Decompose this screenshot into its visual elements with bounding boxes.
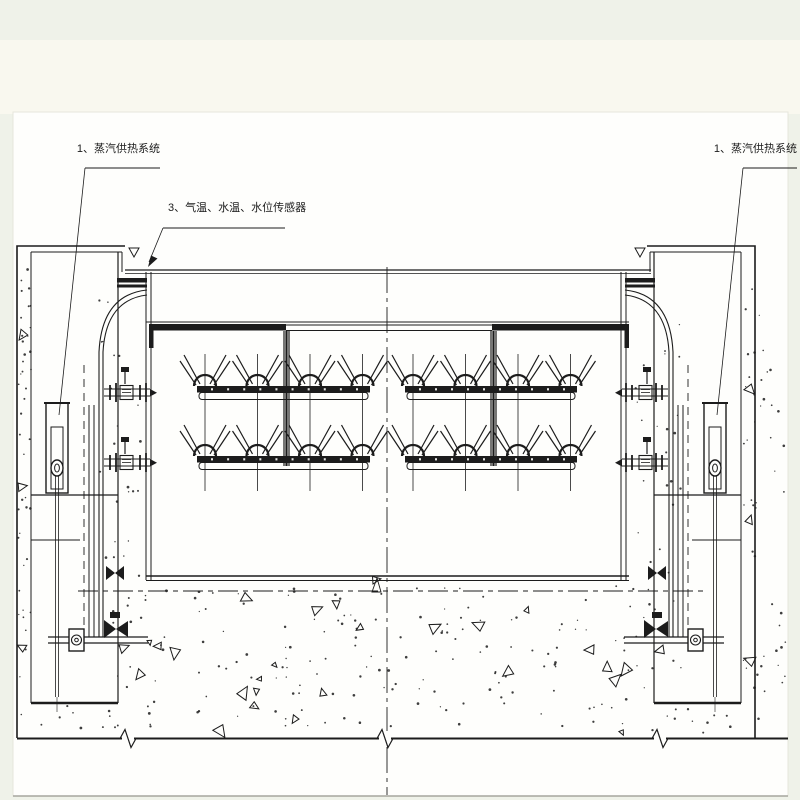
speckle-dot xyxy=(592,721,594,723)
speckle-dot xyxy=(309,660,311,662)
pipe-tick xyxy=(275,388,277,390)
speckle-dot xyxy=(22,610,23,611)
pipe-tick xyxy=(563,458,565,460)
speckle-dot xyxy=(225,668,227,670)
speckle-dot xyxy=(586,629,587,630)
speckle-dot xyxy=(628,669,630,671)
pipe-tick xyxy=(259,388,261,390)
speckle-dot xyxy=(601,704,603,706)
speckle-dot xyxy=(22,361,24,363)
speckle-dot xyxy=(359,675,361,677)
speckle-dot xyxy=(440,706,441,707)
speckle-dot xyxy=(223,631,224,632)
speckle-dot xyxy=(25,387,27,389)
speckle-dot xyxy=(666,484,669,487)
speckle-dot xyxy=(417,702,420,705)
speckle-dot xyxy=(139,440,142,443)
speckle-dot xyxy=(777,410,780,413)
speckle-dot xyxy=(105,556,108,559)
speckle-dot xyxy=(423,679,424,680)
speckle-dot xyxy=(559,629,561,631)
speckle-dot xyxy=(498,682,500,684)
pipe-tick xyxy=(451,388,453,390)
speckle-dot xyxy=(299,684,301,686)
speckle-dot xyxy=(148,712,151,715)
speckle-dot xyxy=(22,340,24,342)
pipe-tick xyxy=(356,388,358,390)
speckle-dot xyxy=(638,532,639,533)
speckle-dot xyxy=(632,588,634,590)
speckle-dot xyxy=(23,398,25,400)
speckle-dot xyxy=(30,612,32,614)
speckle-dot xyxy=(440,631,443,634)
speckle-dot xyxy=(785,641,787,643)
speckle-dot xyxy=(128,491,129,492)
speckle-dot xyxy=(109,715,111,717)
speckle-dot xyxy=(611,707,613,709)
pipe-tick xyxy=(547,388,549,390)
speckle-dot xyxy=(137,490,139,492)
speckle-dot xyxy=(780,646,783,649)
pipe-tick xyxy=(275,458,277,460)
speckle-dot xyxy=(673,432,676,435)
speckle-dot xyxy=(149,724,151,726)
speckle-dot xyxy=(467,607,469,609)
speckle-dot xyxy=(140,617,142,619)
speckle-dot xyxy=(99,471,101,473)
speckle-dot xyxy=(651,667,653,669)
speckle-dot xyxy=(28,305,30,307)
pipe-tick xyxy=(499,388,501,390)
speckle-dot xyxy=(677,415,678,416)
speckle-dot xyxy=(202,641,205,644)
speckle-dot xyxy=(292,692,295,695)
speckle-dot xyxy=(147,705,149,707)
speckle-dot xyxy=(339,597,341,599)
speckle-dot xyxy=(783,491,785,493)
speckle-dot xyxy=(511,691,513,693)
speckle-dot xyxy=(778,665,779,666)
speckle-dot xyxy=(754,555,756,557)
speckle-dot xyxy=(678,356,680,358)
speckle-dot xyxy=(285,725,287,727)
speckle-dot xyxy=(751,288,753,290)
speckle-dot xyxy=(500,696,502,698)
speckle-dot xyxy=(101,341,103,343)
pipe-tick xyxy=(324,388,326,390)
pipe-tick xyxy=(531,388,533,390)
speckle-dot xyxy=(593,707,595,709)
speckle-dot xyxy=(285,718,287,720)
speckle-dot xyxy=(480,651,482,653)
speckle-dot xyxy=(774,470,775,471)
speckle-dot xyxy=(651,729,653,731)
speckle-dot xyxy=(665,451,667,453)
speckle-dot xyxy=(575,629,576,630)
speckle-dot xyxy=(137,404,138,405)
speckle-dot xyxy=(643,480,645,482)
speckle-dot xyxy=(751,499,753,501)
speckle-dot xyxy=(198,590,201,593)
speckle-dot xyxy=(664,350,666,352)
pipe-tick xyxy=(211,388,213,390)
pipe-tick xyxy=(211,458,213,460)
speckle-dot xyxy=(314,619,315,620)
pipe-tick xyxy=(308,458,310,460)
speckle-dot xyxy=(446,631,448,633)
speckle-dot xyxy=(18,508,20,510)
speckle-dot xyxy=(416,587,418,589)
upper-band xyxy=(0,40,800,114)
speckle-dot xyxy=(667,715,668,716)
speckle-dot xyxy=(19,676,20,677)
speckle-dot xyxy=(378,669,381,672)
speckle-dot xyxy=(775,649,778,652)
cad-drawing-page: 1、蒸汽供热系统 3、气温、水温、水位传感器 1、蒸汽供热系统 xyxy=(0,0,800,800)
speckle-dot xyxy=(673,600,674,601)
speckle-dot xyxy=(235,661,237,663)
speckle-dot xyxy=(679,487,681,489)
speckle-dot xyxy=(276,677,277,678)
speckle-dot xyxy=(343,615,345,617)
speckle-dot xyxy=(18,614,19,615)
speckle-dot xyxy=(547,653,549,655)
paper-area xyxy=(13,112,788,796)
speckle-dot xyxy=(486,645,489,648)
speckle-dot xyxy=(286,667,287,668)
speckle-dot xyxy=(745,386,746,387)
speckle-dot xyxy=(114,726,116,728)
speckle-dot xyxy=(679,324,680,325)
pipe-tick xyxy=(435,388,437,390)
speckle-dot xyxy=(764,690,766,692)
speckle-dot xyxy=(743,504,744,505)
speckle-dot xyxy=(112,610,115,613)
speckle-dot xyxy=(672,660,674,662)
speckle-dot xyxy=(745,308,747,310)
speckle-dot xyxy=(754,421,755,422)
pipe-tick xyxy=(419,388,421,390)
speckle-dot xyxy=(458,723,461,726)
speckle-dot xyxy=(25,506,27,508)
speckle-dot xyxy=(648,603,651,606)
speckle-dot xyxy=(452,658,454,660)
speckle-dot xyxy=(285,658,286,659)
speckle-dot xyxy=(155,680,156,681)
speckle-dot xyxy=(107,301,109,303)
speckle-dot xyxy=(460,617,462,619)
speckle-dot xyxy=(383,687,384,688)
pipe-tick xyxy=(419,458,421,460)
pipe-tick xyxy=(227,458,229,460)
speckle-dot xyxy=(637,401,638,402)
speckle-dot xyxy=(252,705,254,707)
speckle-dot xyxy=(763,656,764,657)
speckle-dot xyxy=(289,646,292,649)
speckle-dot xyxy=(118,355,120,357)
speckle-dot xyxy=(129,666,131,668)
speckle-dot xyxy=(102,726,104,728)
speckle-dot xyxy=(21,499,23,501)
speckle-dot xyxy=(324,631,326,633)
speckle-dot xyxy=(756,674,758,676)
speckle-dot xyxy=(354,619,356,621)
speckle-dot xyxy=(274,710,277,713)
speckle-dot xyxy=(755,507,756,508)
speckle-dot xyxy=(503,702,505,704)
speckle-dot xyxy=(126,686,128,688)
speckle-dot xyxy=(702,732,704,734)
spray-pipe xyxy=(197,456,370,463)
speckle-dot xyxy=(585,599,587,601)
speckle-dot xyxy=(760,665,762,667)
speckle-dot xyxy=(680,667,681,668)
speckle-dot xyxy=(459,588,461,590)
speckle-dot xyxy=(747,439,748,440)
speckle-dot xyxy=(196,711,199,714)
speckle-dot xyxy=(307,725,308,726)
speckle-dot xyxy=(419,688,420,689)
label-steam-system-left: 1、蒸汽供热系统 xyxy=(77,141,160,155)
speckle-dot xyxy=(288,595,289,596)
speckle-dot xyxy=(615,585,617,587)
pipe-tick xyxy=(340,388,342,390)
spray-pipe xyxy=(197,386,370,393)
speckle-dot xyxy=(30,305,32,307)
speckle-dot xyxy=(629,606,631,608)
speckle-dot xyxy=(767,371,769,373)
speckle-dot xyxy=(666,428,669,431)
speckle-dot xyxy=(757,718,760,721)
speckle-dot xyxy=(355,636,357,638)
pipe-tick xyxy=(563,388,565,390)
speckle-dot xyxy=(113,443,115,445)
speckle-dot xyxy=(622,723,623,724)
pipe-tick xyxy=(308,388,310,390)
speckle-dot xyxy=(726,715,728,717)
speckle-dot xyxy=(763,398,766,401)
pipe-tick xyxy=(356,458,358,460)
speckle-dot xyxy=(286,676,287,677)
speckle-dot xyxy=(149,725,151,727)
speckle-dot xyxy=(293,588,296,591)
speckle-dot xyxy=(753,686,756,689)
speckle-dot xyxy=(753,351,756,354)
pipe-tick xyxy=(243,388,245,390)
speckle-dot xyxy=(72,712,74,714)
speckle-dot xyxy=(23,565,24,566)
speckle-dot xyxy=(543,665,545,667)
speckle-dot xyxy=(243,603,245,605)
speckle-dot xyxy=(462,702,464,704)
speckle-dot xyxy=(433,690,435,692)
speckle-dot xyxy=(25,497,26,498)
speckle-dot xyxy=(114,541,115,542)
speckle-dot xyxy=(644,687,645,688)
speckle-dot xyxy=(729,725,732,728)
speckle-dot xyxy=(692,720,693,721)
speckle-dot xyxy=(649,561,651,563)
pipe-tick xyxy=(547,458,549,460)
pipe-tick xyxy=(292,388,294,390)
speckle-dot xyxy=(18,383,20,385)
speckle-dot xyxy=(375,619,377,621)
speckle-dot xyxy=(19,533,20,534)
speckle-dot xyxy=(495,671,497,673)
pipe-tick xyxy=(467,388,469,390)
speckle-dot xyxy=(746,668,747,669)
speckle-dot xyxy=(780,612,783,615)
speckle-dot xyxy=(635,636,637,638)
speckle-dot xyxy=(759,315,760,316)
speckle-dot xyxy=(237,716,238,717)
speckle-dot xyxy=(29,507,32,510)
pipe-tick xyxy=(324,458,326,460)
speckle-dot xyxy=(293,590,296,593)
speckle-dot xyxy=(128,540,129,541)
speckle-dot xyxy=(17,537,19,539)
pipe-tick xyxy=(467,458,469,460)
speckle-dot xyxy=(23,454,25,456)
speckle-dot xyxy=(205,696,207,698)
speckle-dot xyxy=(446,623,448,625)
pipe-tick xyxy=(243,458,245,460)
speckle-dot xyxy=(113,556,115,558)
speckle-dot xyxy=(444,587,445,588)
pipe-tick xyxy=(292,458,294,460)
speckle-dot xyxy=(779,625,781,627)
pipe-tick xyxy=(435,458,437,460)
speckle-dot xyxy=(760,405,761,406)
speckle-dot xyxy=(444,608,445,609)
speckle-dot xyxy=(25,629,27,631)
speckle-dot xyxy=(675,708,677,710)
pipe-tick xyxy=(483,458,485,460)
speckle-dot xyxy=(298,692,300,694)
speckle-dot xyxy=(713,714,715,716)
speckle-dot xyxy=(165,589,168,592)
speckle-dot xyxy=(205,608,207,610)
speckle-dot xyxy=(643,617,644,618)
speckle-dot xyxy=(556,647,558,649)
speckle-dot xyxy=(623,637,625,639)
speckle-dot xyxy=(194,597,197,600)
speckle-dot xyxy=(238,593,239,594)
speckle-dot xyxy=(555,666,557,668)
speckle-dot xyxy=(218,665,220,667)
speckle-dot xyxy=(138,575,140,577)
speckle-dot xyxy=(370,656,372,658)
speckle-dot xyxy=(589,708,591,710)
speckle-dot xyxy=(615,640,616,641)
speckle-dot xyxy=(20,413,22,415)
speckle-dot xyxy=(781,682,783,684)
speckle-dot xyxy=(445,709,447,711)
speckle-dot xyxy=(577,620,578,621)
speckle-dot xyxy=(391,688,393,690)
speckle-dot xyxy=(29,438,31,440)
speckle-dot xyxy=(395,683,397,685)
speckle-dot xyxy=(30,327,31,328)
speckle-dot xyxy=(482,596,484,598)
speckle-dot xyxy=(164,636,166,638)
speckle-dot xyxy=(623,649,625,651)
speckle-dot xyxy=(748,376,750,378)
speckle-dot xyxy=(334,593,337,596)
pipe-tick xyxy=(531,458,533,460)
pipe-tick xyxy=(227,388,229,390)
speckle-dot xyxy=(20,317,22,319)
speckle-dot xyxy=(111,388,113,390)
speckle-dot xyxy=(132,490,134,492)
speckle-dot xyxy=(643,364,645,366)
speckle-dot xyxy=(117,725,119,727)
speckle-dot xyxy=(531,649,533,651)
spray-pipe xyxy=(405,456,577,463)
speckle-dot xyxy=(771,404,773,406)
speckle-dot xyxy=(22,371,24,373)
speckle-dot xyxy=(743,443,745,445)
speckle-dot xyxy=(359,721,362,724)
pipe-tick xyxy=(515,458,517,460)
speckle-dot xyxy=(128,597,130,599)
speckle-dot xyxy=(284,626,286,628)
pipe-tick xyxy=(483,388,485,390)
speckle-dot xyxy=(153,701,155,703)
speckle-dot xyxy=(390,725,392,727)
speckle-dot xyxy=(751,550,753,552)
speckle-dot xyxy=(117,675,119,677)
pipe-tick xyxy=(340,458,342,460)
speckle-dot xyxy=(112,622,114,624)
speckle-dot xyxy=(756,502,757,503)
speckle-dot xyxy=(316,673,318,675)
speckle-dot xyxy=(23,616,25,618)
pipe-tick xyxy=(451,458,453,460)
speckle-dot xyxy=(672,504,674,506)
speckle-dot xyxy=(399,636,401,638)
speckle-dot xyxy=(350,614,351,615)
speckle-dot xyxy=(285,647,286,648)
speckle-dot xyxy=(59,716,61,718)
speckle-dot xyxy=(66,705,68,707)
speckle-dot xyxy=(80,727,83,730)
speckle-dot xyxy=(162,648,165,651)
speckle-dot xyxy=(127,486,130,489)
speckle-dot xyxy=(353,694,356,697)
speckle-dot xyxy=(636,665,637,666)
speckle-dot xyxy=(212,592,214,594)
speckle-dot xyxy=(325,658,327,660)
speckle-dot xyxy=(462,628,464,630)
speckle-dot xyxy=(784,676,786,678)
speckle-dot xyxy=(21,290,23,292)
speckle-dot xyxy=(540,713,542,715)
speckle-dot xyxy=(654,608,656,610)
gate-elevation-drawing: 1、蒸汽供热系统 3、气温、水温、水位传感器 1、蒸汽供热系统 xyxy=(0,0,800,800)
speckle-dot xyxy=(782,444,785,447)
speckle-dot xyxy=(21,280,23,282)
speckle-dot xyxy=(245,653,248,656)
speckle-dot xyxy=(343,717,346,720)
speckle-dot xyxy=(561,725,563,727)
speckle-dot xyxy=(198,672,200,674)
speckle-dot xyxy=(561,623,563,625)
speckle-dot xyxy=(116,500,118,502)
speckle-dot xyxy=(332,693,335,696)
speckle-dot xyxy=(366,666,367,667)
speckle-dot xyxy=(747,353,749,355)
